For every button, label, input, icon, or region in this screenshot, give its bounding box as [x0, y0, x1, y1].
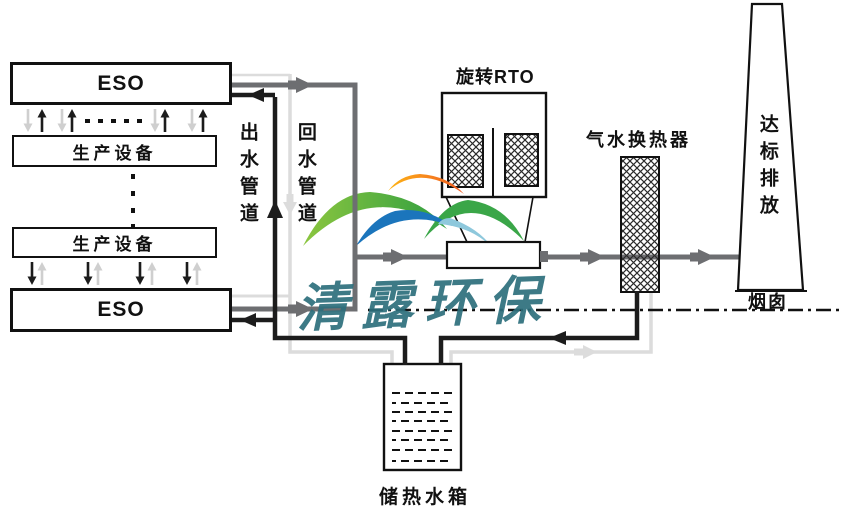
tank-label: 储热水箱 — [379, 487, 471, 509]
exchange-arrows-bottom — [28, 262, 202, 285]
heat-exchanger-column — [621, 157, 659, 292]
production-equipment-bottom-box: 生产设备 — [12, 227, 217, 258]
stack-emission-label: 达标排放 — [756, 114, 778, 222]
hot-arrow-into-eso-bottom — [240, 313, 256, 327]
ellipsis-horizontal — [85, 119, 142, 123]
eso-bottom-label: ESO — [97, 298, 144, 322]
ellipsis-vertical — [131, 174, 135, 229]
eso-top-label: ESO — [97, 72, 144, 96]
production-equipment-bottom-label: 生产设备 — [73, 230, 157, 255]
hot-arrow-up — [267, 200, 283, 218]
hot-arrow-into-eso-top — [248, 88, 264, 102]
production-equipment-top-label: 生产设备 — [73, 139, 157, 164]
logo-arc-blue — [356, 210, 452, 246]
production-equipment-top-box: 生产设备 — [12, 135, 217, 167]
flue-arrow-4 — [580, 249, 605, 265]
flue-arrow-5 — [690, 249, 715, 265]
eso-top-box: ESO — [10, 62, 232, 105]
flue-arrow-3 — [383, 249, 408, 265]
eso-bottom-box: ESO — [10, 288, 232, 332]
storage-tank — [384, 364, 461, 470]
stack-label: 烟囱 — [748, 292, 788, 313]
rto-heat-bed-left — [448, 135, 483, 187]
rto-unit — [442, 93, 546, 242]
rto-label: 旋转RTO — [456, 67, 535, 88]
hot-arrow-left — [549, 331, 566, 345]
heat-exchanger-label: 气水换热器 — [586, 130, 691, 151]
rto-heat-bed-right — [505, 134, 538, 186]
cold-pipe-right-arrow — [574, 345, 597, 359]
return-pipe-label: 回水管道 — [294, 122, 316, 230]
burner-outlet-nub — [540, 251, 548, 262]
rto-burner-section — [447, 242, 548, 268]
outlet-pipe-label: 出水管道 — [236, 122, 258, 230]
process-diagram: ESO 生产设备 生产设备 ESO 出水管道 回水管道 旋转RTO 气水换热器 … — [0, 0, 842, 515]
exchange-arrows-top — [24, 109, 208, 132]
